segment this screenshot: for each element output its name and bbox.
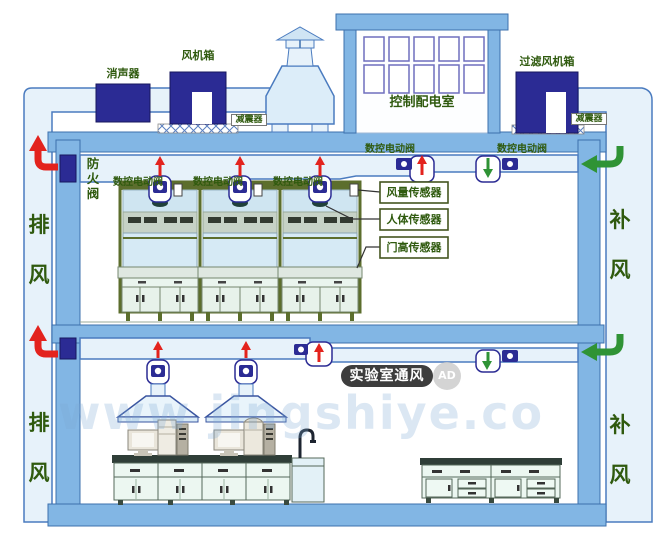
lower-fire-damper: [60, 338, 76, 359]
fume-hood-1: [118, 182, 202, 321]
lab-bench-right: [420, 458, 562, 503]
sink-cabinet: [292, 430, 324, 502]
cnc-valve-label-4: 数控电动阀: [358, 144, 422, 156]
cnc-valve-label-5: 数控电动阀: [490, 144, 554, 156]
silencer-box: [96, 84, 150, 122]
lab-ventilation-diagram: www jingshiye.co 消声器 风机箱 减震器 控制配电室 过滤风机箱…: [0, 0, 659, 538]
filter-fan-box: [516, 72, 578, 133]
cnc-valve-label-2: 数控电动阀: [188, 177, 248, 189]
watermark-badge: 实验室通风: [341, 365, 433, 387]
upper-fire-damper: [60, 155, 76, 182]
silencer-label: 消声器: [96, 68, 150, 81]
cnc-valve-upper-supply: [476, 156, 518, 182]
cnc-valve-label-3: 数控电动阀: [268, 177, 328, 189]
lower-ceiling-duct-main: [80, 338, 310, 359]
bottom-floor-slab: [48, 504, 606, 526]
fan-box: [170, 72, 226, 124]
cnc-valve-lower-supply: [476, 350, 518, 372]
fire-damper-label: 防 火 阀: [85, 156, 101, 201]
control-room-windows: [364, 37, 484, 93]
fan-box-label: 风机箱: [170, 50, 226, 63]
cnc-valve-lower-exhaust: [294, 342, 332, 366]
control-room-label: 控制配电室: [356, 96, 488, 111]
shock-absorber-left-label: 减震器: [231, 114, 267, 126]
exhaust-shaft-label-upper: 排 风: [26, 200, 52, 300]
lower-ceiling-duct-thin: [310, 348, 578, 362]
lab-bench-left: [112, 455, 292, 505]
exhaust-shaft-label-lower: 排 风: [26, 398, 52, 498]
door-sensor-label: 门高传感器: [380, 237, 448, 258]
vibration-base-left: [158, 124, 238, 133]
fume-hoods: [118, 182, 362, 321]
human-sensor-label: 人体传感器: [380, 209, 448, 230]
supply-shaft-label-lower: 补 风: [607, 400, 633, 500]
supply-shaft-label-upper: 补 风: [607, 195, 633, 295]
control-room: [336, 14, 508, 133]
airflow-sensor-label: 风量传感器: [380, 182, 448, 203]
cnc-valve-upper-exhaust: [396, 155, 434, 182]
shock-absorber-right-label: 减震器: [571, 113, 607, 125]
airflow-sensor-tab-1: [174, 184, 182, 196]
site-watermark: www jingshiye.co: [58, 386, 628, 440]
fume-hood-2: [198, 182, 282, 321]
filter-fan-box-label: 过滤风机箱: [504, 56, 590, 69]
diagram-canvas: [0, 0, 659, 538]
watermark-ad-badge: AD: [433, 362, 461, 390]
fume-hood-3: [278, 182, 362, 321]
airflow-sensor-tab-2: [254, 184, 262, 196]
exhaust-stack: [266, 27, 334, 132]
airflow-sensor-tab-3: [350, 184, 358, 196]
cnc-valve-label-1: 数控电动阀: [108, 177, 168, 189]
